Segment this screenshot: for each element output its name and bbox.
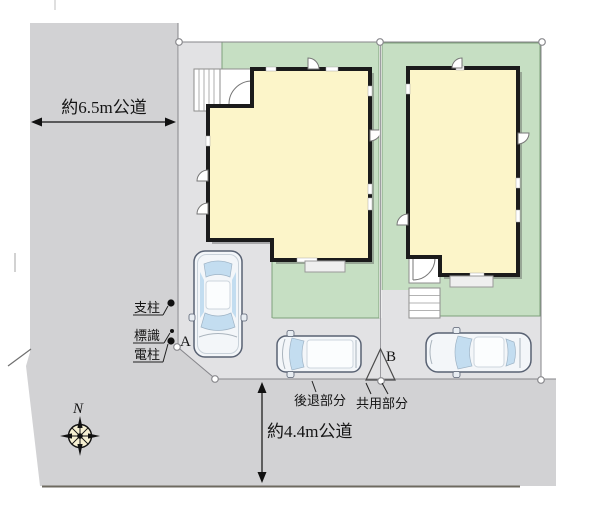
compass-north-label: N [72, 401, 84, 417]
utility-pole-dot [167, 337, 174, 344]
car-1 [189, 251, 247, 357]
boundary-marker [378, 378, 385, 385]
sign-label: 標識 [134, 328, 160, 343]
car-roof [474, 337, 504, 367]
boundary-marker [539, 39, 546, 46]
utility-pole-label: 電柱 [134, 347, 160, 362]
building-2 [408, 68, 518, 275]
car-roof [307, 340, 353, 368]
car-mirror [453, 328, 460, 334]
stairs-2 [409, 288, 440, 318]
point-a-label: A [180, 334, 191, 350]
car-mirror [189, 314, 195, 321]
car-3 [426, 328, 531, 378]
boundary-marker [176, 39, 183, 46]
site-plan: 約6.5m公道 約4.4m公道 支柱 標識 電柱 A B 後退部分 共用部分 N [0, 0, 600, 510]
car-windshield [455, 336, 472, 369]
plot-2-parking-notch [382, 290, 410, 317]
car-2 [277, 331, 361, 378]
setback-area-label: 後退部分 [294, 393, 346, 408]
point-b-label: B [386, 349, 396, 365]
bottom-road-width-label: 約4.4m公道 [267, 422, 352, 441]
building-2-step [450, 276, 493, 287]
car-mirror [453, 372, 460, 378]
site-plan-page: 約6.5m公道 約4.4m公道 支柱 標識 電柱 A B 後退部分 共用部分 N [0, 0, 600, 510]
boundary-marker [538, 377, 545, 384]
sign-dot [170, 329, 174, 333]
car-roof [206, 281, 230, 309]
shared-area-label: 共用部分 [356, 396, 408, 411]
car-mirror [287, 331, 294, 337]
porch-1 [220, 69, 253, 106]
support-pole-dot [167, 299, 174, 306]
support-pole-label: 支柱 [134, 300, 160, 315]
boundary-marker [377, 39, 384, 46]
left-road-width-label: 約6.5m公道 [61, 98, 146, 117]
car-windshield [290, 338, 305, 370]
building-1-step [305, 261, 345, 272]
car-mirror [287, 372, 294, 378]
boundary-marker [212, 376, 219, 383]
car-rear-window [204, 261, 232, 277]
porch-2 [409, 257, 440, 283]
car-mirror [241, 314, 247, 321]
